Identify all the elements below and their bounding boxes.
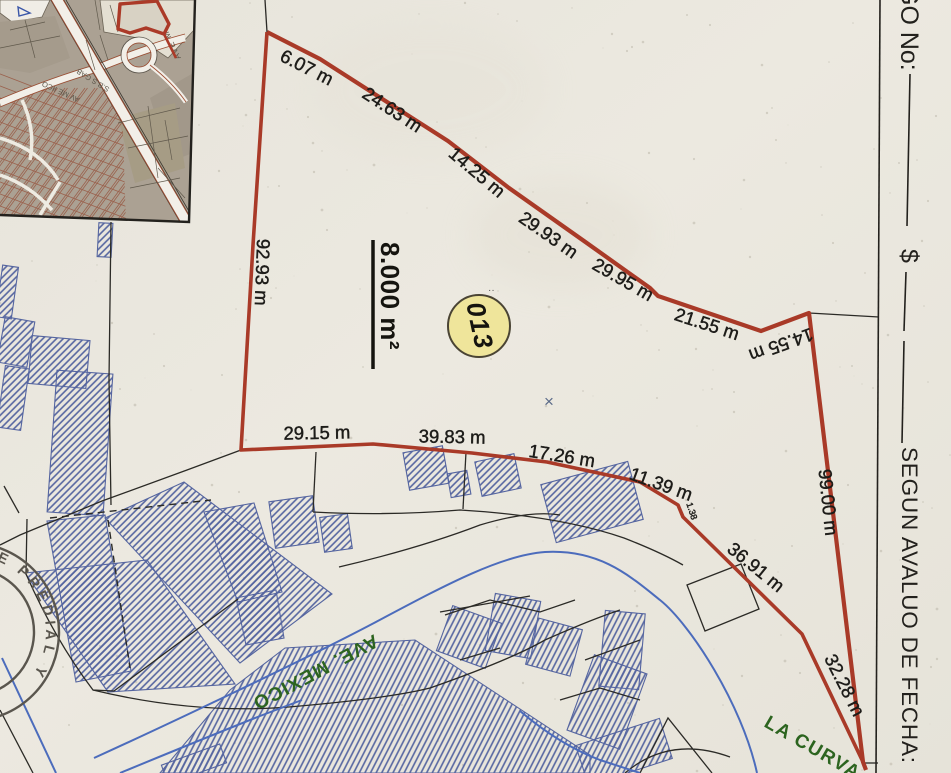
svg-text:8.000 m²: 8.000 m²	[375, 242, 405, 350]
svg-text:29.15 m: 29.15 m	[283, 421, 350, 443]
svg-text:92.93 m: 92.93 m	[251, 238, 274, 306]
svg-text:··: ··	[488, 285, 495, 296]
svg-text:SEGUN AVALUO DE FECHA:: SEGUN AVALUO DE FECHA:	[897, 447, 922, 764]
svg-text:×: ×	[544, 392, 554, 411]
svg-text:GO No:: GO No:	[895, 0, 923, 71]
svg-text:$: $	[895, 249, 923, 263]
svg-text:39.83 m: 39.83 m	[419, 425, 486, 447]
